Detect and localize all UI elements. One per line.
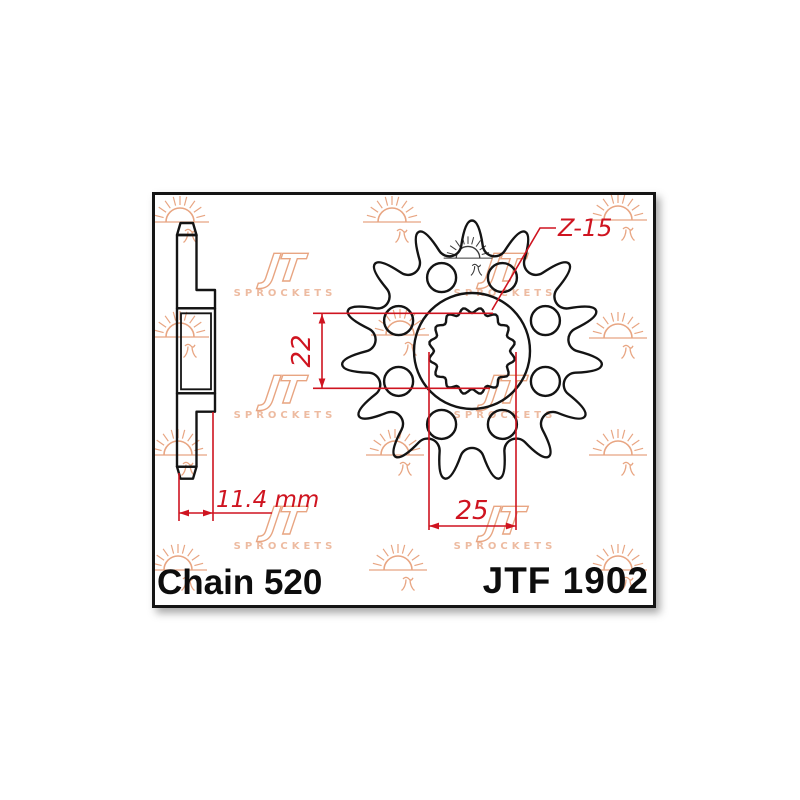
drawing-sheet: JT SPROCKETS <box>152 192 656 608</box>
dim114-arrow-right <box>203 510 213 517</box>
section-hub <box>177 308 215 393</box>
sun-watermark-icon <box>369 544 427 591</box>
lightening-hole <box>531 306 560 335</box>
teeth-count-value: Z-15 <box>557 214 612 242</box>
jt-sprockets-watermark <box>234 247 337 299</box>
sun-watermark-icon <box>155 429 207 476</box>
hub-circle <box>414 293 530 409</box>
sprocket-side-view <box>177 223 215 479</box>
dimension-annotations: 22 25 11.4 mm Z-15 <box>179 214 612 530</box>
sun-watermark-icon <box>589 429 647 476</box>
dim114-arrow-left <box>179 510 189 517</box>
dim114-value: 11.4 mm <box>216 487 319 513</box>
lightening-hole <box>531 367 560 396</box>
watermark-layer <box>155 195 647 591</box>
sun-watermark-icon <box>589 312 647 359</box>
dim22-value: 22 <box>287 334 317 367</box>
technical-drawing-canvas: JT SPROCKETS <box>155 195 653 605</box>
dim25-arrow-left <box>429 523 439 530</box>
lightening-hole <box>427 263 456 292</box>
sun-watermark-icon <box>371 309 429 356</box>
section-bottom-chamfer <box>177 467 197 479</box>
sun-watermark-icon <box>363 196 421 243</box>
section-upper-hatched <box>177 235 215 308</box>
sprocket-teeth-outline <box>342 221 602 479</box>
dim22-arrow-up <box>319 314 326 324</box>
jt-sprockets-watermark <box>234 369 337 421</box>
lightening-hole <box>384 367 413 396</box>
sun-watermark-icon <box>155 311 209 358</box>
section-lower-hatched <box>177 393 215 466</box>
dim22-arrow-down <box>319 379 326 389</box>
chain-size-label: Chain 520 <box>157 565 322 600</box>
sprocket-drawing-page: JT SPROCKETS <box>0 0 800 800</box>
dim25-value: 25 <box>455 496 488 526</box>
sun-watermark-icon <box>366 429 424 476</box>
model-number-label: JTF 1902 <box>483 562 649 599</box>
lightening-hole <box>427 410 456 439</box>
sprocket-front-view <box>342 221 602 479</box>
